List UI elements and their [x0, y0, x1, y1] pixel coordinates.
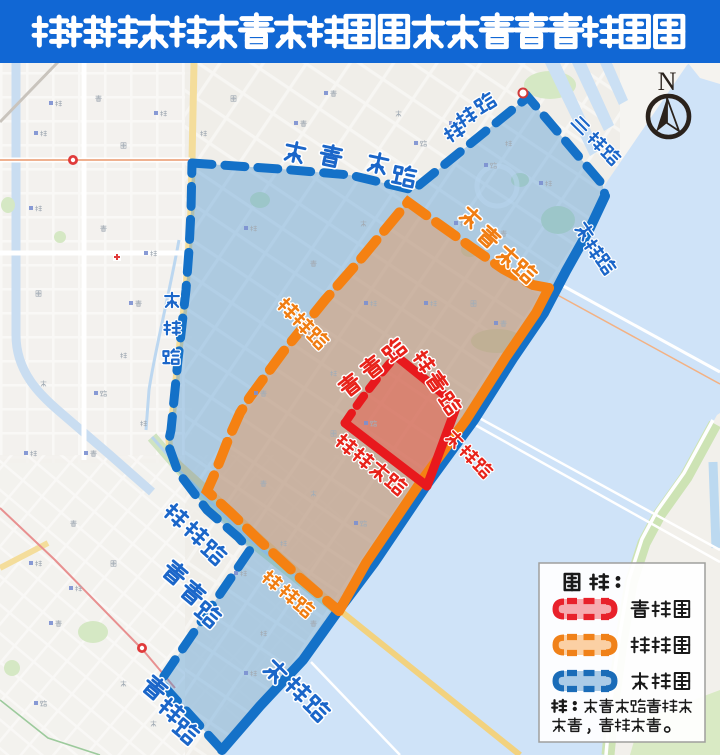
svg-text:N: N: [658, 67, 677, 96]
